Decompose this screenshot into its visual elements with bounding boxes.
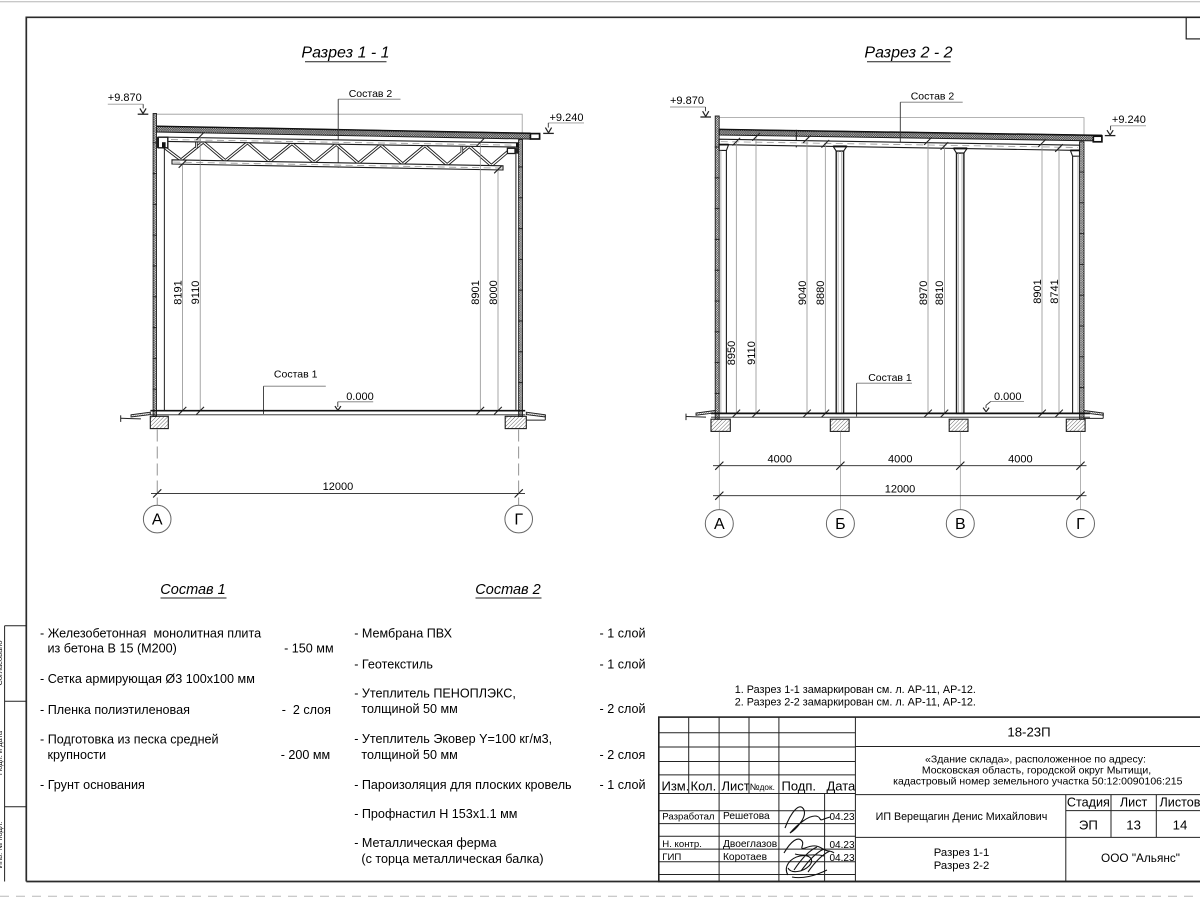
svg-text:Состав 1: Состав 1 bbox=[274, 368, 318, 380]
svg-text:8191: 8191 bbox=[172, 280, 184, 304]
svg-text:Подп.: Подп. bbox=[782, 778, 817, 793]
svg-text:Лист: Лист bbox=[722, 778, 750, 793]
svg-text:Коротаев: Коротаев bbox=[723, 852, 767, 863]
svg-text:ИП Верещагин Денис Михайлович: ИП Верещагин Денис Михайлович bbox=[876, 811, 1048, 823]
svg-text:+9.240: +9.240 bbox=[550, 112, 584, 124]
svg-text:(с торца металлическая балка): (с торца металлическая балка) bbox=[361, 852, 543, 866]
svg-text:Г: Г bbox=[1076, 516, 1085, 533]
svg-text:- Геотекстиль: - Геотекстиль bbox=[354, 658, 433, 672]
svg-text:8970: 8970 bbox=[918, 281, 930, 305]
svg-text:0.000: 0.000 bbox=[994, 391, 1022, 403]
svg-text:04.23: 04.23 bbox=[830, 840, 855, 851]
svg-text:Разрез 2 - 2: Разрез 2 - 2 bbox=[864, 45, 952, 62]
svg-text:- 150 мм: - 150 мм bbox=[284, 642, 334, 656]
svg-text:- Грунт основания: - Грунт основания bbox=[40, 778, 145, 792]
svg-text:Состав 2: Состав 2 bbox=[475, 582, 540, 598]
svg-text:- Утеплитель Эковер Y=100 кг/м: - Утеплитель Эковер Y=100 кг/м3, bbox=[354, 732, 552, 746]
svg-text:0.000: 0.000 bbox=[346, 391, 374, 403]
svg-text:из бетона В 15 (М200): из бетона В 15 (М200) bbox=[48, 642, 177, 656]
svg-text:13: 13 bbox=[1126, 818, 1141, 833]
svg-text:- 2 слой: - 2 слой bbox=[600, 702, 646, 716]
svg-text:Двоеглазов: Двоеглазов bbox=[723, 839, 777, 850]
svg-text:2. Разрез 2-2 замаркирован см.: 2. Разрез 2-2 замаркирован см. л. АР-11,… bbox=[735, 697, 976, 709]
svg-text:- Профнастил Н 153х1.1 мм: - Профнастил Н 153х1.1 мм bbox=[354, 807, 517, 821]
svg-text:ГИП: ГИП bbox=[662, 852, 681, 863]
svg-text:Н. контр.: Н. контр. bbox=[662, 839, 702, 850]
svg-text:12000: 12000 bbox=[323, 481, 354, 493]
svg-text:- 1 слой: - 1 слой bbox=[600, 778, 646, 792]
svg-text:Подп. и дата: Подп. и дата bbox=[0, 730, 4, 775]
svg-text:В: В bbox=[955, 516, 966, 533]
svg-text:04.23: 04.23 bbox=[830, 853, 855, 864]
svg-text:- Пленка полиэтиленовая: - Пленка полиэтиленовая bbox=[40, 703, 190, 717]
svg-text:Г: Г bbox=[514, 512, 523, 529]
svg-text:крупности: крупности bbox=[48, 748, 107, 762]
svg-text:12000: 12000 bbox=[885, 483, 916, 495]
svg-text:- Железобетонная монолитная п: - Железобетонная монолитная плита bbox=[40, 627, 261, 641]
svg-text:Инв. № подл.: Инв. № подл. bbox=[0, 822, 4, 869]
svg-text:Изм.: Изм. bbox=[662, 778, 690, 793]
svg-text:8880: 8880 bbox=[815, 281, 827, 305]
svg-text:- Пароизоляция для плоских кро: - Пароизоляция для плоских кровель bbox=[354, 778, 572, 792]
svg-text:- 200 мм: - 200 мм bbox=[281, 748, 331, 762]
svg-text:кадастровый номер земельного у: кадастровый номер земельного участка 50:… bbox=[893, 776, 1182, 788]
svg-text:1. Разрез 1-1 замаркирован см.: 1. Разрез 1-1 замаркирован см. л. АР-11,… bbox=[735, 684, 976, 696]
svg-text:ЭП: ЭП bbox=[1079, 818, 1098, 833]
svg-text:+9.870: +9.870 bbox=[670, 95, 704, 107]
svg-text:8000: 8000 bbox=[488, 280, 500, 304]
svg-text:+9.870: +9.870 bbox=[108, 92, 142, 104]
svg-text:8901: 8901 bbox=[1032, 279, 1044, 303]
svg-text:Состав 2: Состав 2 bbox=[349, 88, 393, 100]
svg-text:толщиной 50 мм: толщиной 50 мм bbox=[361, 702, 457, 716]
svg-text:- Сетка армирующая Ø3 100х100: - Сетка армирующая Ø3 100х100 мм bbox=[40, 672, 255, 686]
svg-text:9110: 9110 bbox=[746, 341, 758, 365]
svg-text:Б: Б bbox=[835, 516, 846, 533]
svg-text:Состав 1: Состав 1 bbox=[160, 582, 225, 598]
svg-text:Разработал: Разработал bbox=[662, 812, 714, 823]
svg-text:8901: 8901 bbox=[470, 280, 482, 304]
svg-text:+9.240: +9.240 bbox=[1112, 114, 1146, 126]
svg-text:- Мембрана ПВХ: - Мембрана ПВХ bbox=[354, 627, 452, 641]
svg-text:- 2 слоя: - 2 слоя bbox=[282, 703, 331, 717]
svg-text:Состав 1: Состав 1 bbox=[868, 372, 912, 384]
svg-text:8810: 8810 bbox=[934, 281, 946, 305]
svg-text:- 2 слоя: - 2 слоя bbox=[600, 748, 646, 762]
svg-text:- 1 слой: - 1 слой bbox=[600, 658, 646, 672]
svg-text:Разрез 1-1: Разрез 1-1 bbox=[934, 847, 989, 859]
svg-text:18-23П: 18-23П bbox=[1007, 724, 1050, 739]
svg-text:Разрез 2-2: Разрез 2-2 bbox=[934, 860, 989, 872]
svg-text:- Подготовка из песка средней: - Подготовка из песка средней bbox=[40, 732, 219, 746]
svg-text:Состав 2: Состав 2 bbox=[911, 90, 955, 102]
svg-text:Дата: Дата bbox=[827, 778, 857, 793]
svg-text:- Металлическая ферма: - Металлическая ферма bbox=[354, 836, 496, 850]
svg-text:Разрез 1 - 1: Разрез 1 - 1 bbox=[301, 45, 389, 62]
svg-text:А: А bbox=[714, 516, 725, 533]
svg-text:9110: 9110 bbox=[190, 281, 202, 305]
svg-text:8950: 8950 bbox=[726, 341, 738, 365]
svg-text:4000: 4000 bbox=[768, 453, 792, 465]
svg-text:Листов: Листов bbox=[1160, 796, 1200, 810]
svg-text:8741: 8741 bbox=[1049, 279, 1061, 303]
svg-text:№док.: №док. bbox=[750, 782, 775, 792]
svg-text:4000: 4000 bbox=[1008, 453, 1032, 465]
svg-text:9040: 9040 bbox=[797, 281, 809, 305]
svg-text:Согласовано: Согласовано bbox=[0, 640, 4, 685]
svg-text:04.23: 04.23 bbox=[830, 812, 855, 823]
svg-text:толщиной 50 мм: толщиной 50 мм bbox=[361, 748, 457, 762]
svg-text:- Утеплитель ПЕНОПЛЭКС,: - Утеплитель ПЕНОПЛЭКС, bbox=[354, 687, 516, 701]
svg-text:А: А bbox=[152, 512, 163, 529]
svg-text:4000: 4000 bbox=[888, 453, 912, 465]
svg-text:ООО "Альянс": ООО "Альянс" bbox=[1101, 851, 1180, 865]
svg-text:Решетова: Решетова bbox=[723, 811, 770, 822]
svg-text:Кол.: Кол. bbox=[691, 778, 717, 793]
svg-text:- 1 слой: - 1 слой bbox=[600, 627, 646, 641]
svg-text:Лист: Лист bbox=[1120, 796, 1148, 810]
svg-text:Стадия: Стадия bbox=[1067, 796, 1110, 810]
svg-text:14: 14 bbox=[1173, 818, 1188, 833]
